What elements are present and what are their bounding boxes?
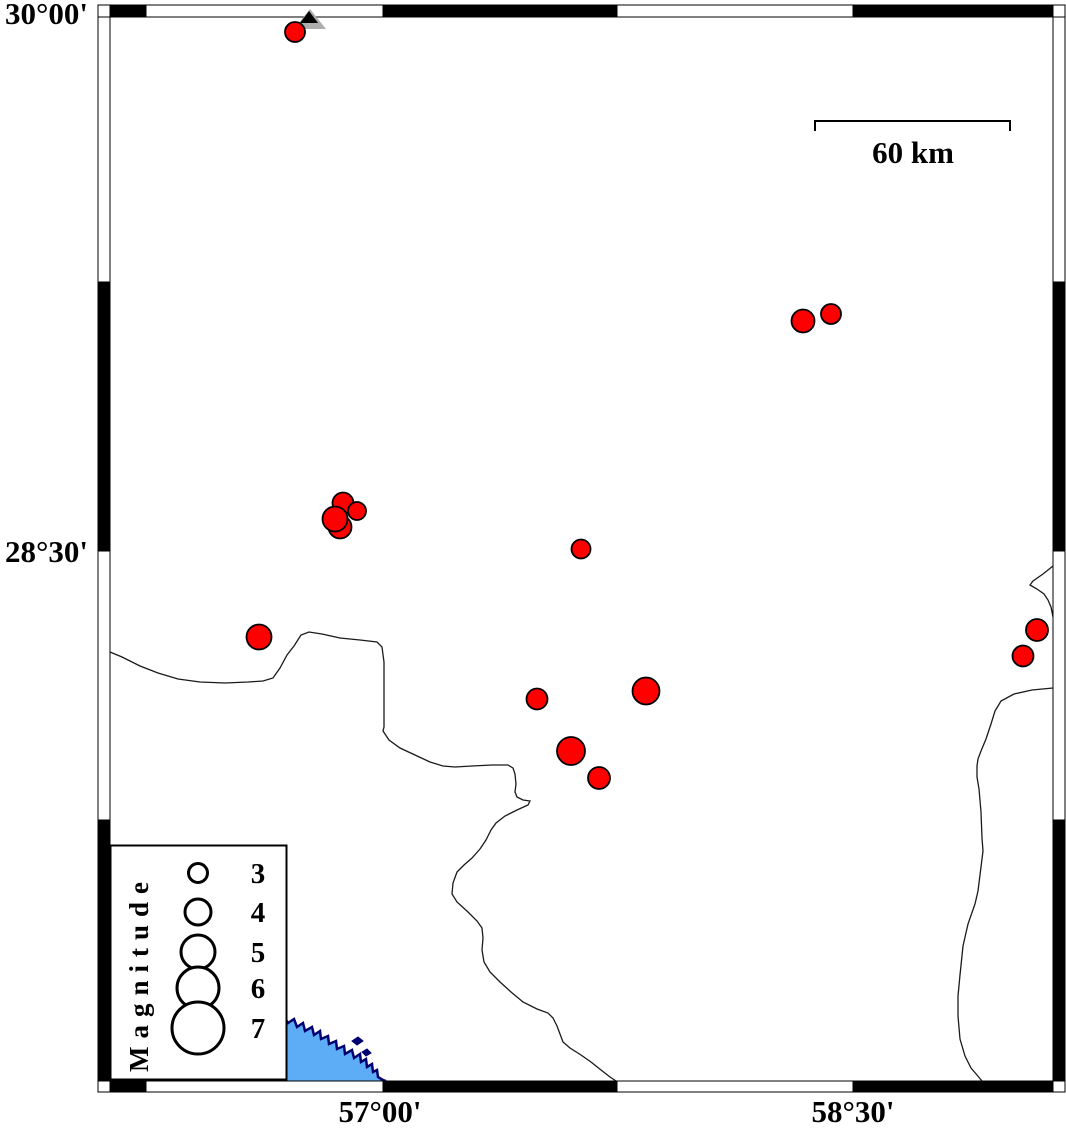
- earthquake-epicenter: [821, 304, 841, 324]
- magnitude-legend: Magnitude 34567: [111, 846, 287, 1080]
- earthquake-epicenter: [792, 310, 815, 333]
- legend-magnitude-label: 7: [251, 1013, 266, 1045]
- earthquake-epicenter: [323, 507, 348, 532]
- earthquake-epicenter: [348, 502, 366, 520]
- legend-magnitude-circle: [185, 899, 211, 925]
- frame-segment: [383, 1081, 617, 1092]
- earthquake-epicenter: [633, 678, 660, 705]
- frame-corner: [98, 5, 110, 17]
- earthquake-epicenter: [1026, 619, 1048, 641]
- frame-segment: [383, 5, 617, 17]
- legend-magnitude-label: 5: [251, 937, 266, 969]
- frame-segment: [110, 1081, 146, 1092]
- legend-title: Magnitude: [124, 874, 154, 1072]
- legend-magnitude-circle: [172, 1002, 224, 1054]
- admin-boundary: [1030, 566, 1053, 617]
- frame-corner: [1053, 1081, 1065, 1092]
- earthquake-epicenter: [285, 22, 305, 42]
- scale-bar-label: 60 km: [872, 135, 954, 170]
- legend-magnitude-circle: [189, 864, 208, 883]
- frame-segment: [853, 5, 1053, 17]
- seismicity-map: 60 km Magnitude 34567 30°00' 28°30' 57°0…: [0, 0, 1066, 1130]
- scale-bar-bracket: [815, 121, 1010, 131]
- legend-magnitude-label: 6: [251, 973, 266, 1005]
- admin-boundary: [958, 688, 1053, 1081]
- legend-magnitude-label: 4: [251, 897, 266, 929]
- lat-label-30-00: 30°00': [5, 0, 88, 31]
- frame-segment: [1053, 282, 1065, 551]
- earthquake-epicenter: [572, 540, 591, 559]
- earthquake-epicenter: [1013, 646, 1034, 667]
- earthquake-epicenter: [527, 689, 548, 710]
- frame-segment: [110, 5, 146, 17]
- frame-corner: [1053, 5, 1065, 17]
- island: [362, 1049, 371, 1056]
- legend-magnitude-circle: [181, 935, 215, 969]
- island: [352, 1037, 363, 1045]
- earthquake-epicenter: [247, 625, 272, 650]
- lon-label-57-00: 57°00': [338, 1094, 421, 1129]
- earthquake-epicenter: [557, 737, 585, 765]
- frame-segment: [853, 1081, 1053, 1092]
- frame-segment: [98, 820, 110, 1081]
- earthquake-epicenter: [588, 767, 610, 789]
- lon-label-58-30: 58°30': [811, 1094, 894, 1129]
- lat-label-28-30: 28°30': [5, 534, 88, 569]
- scale-bar: 60 km: [815, 121, 1010, 170]
- frame-segment: [1053, 820, 1065, 1081]
- frame-segment: [98, 282, 110, 551]
- frame-corner: [98, 1081, 110, 1092]
- legend-magnitude-label: 3: [251, 858, 266, 890]
